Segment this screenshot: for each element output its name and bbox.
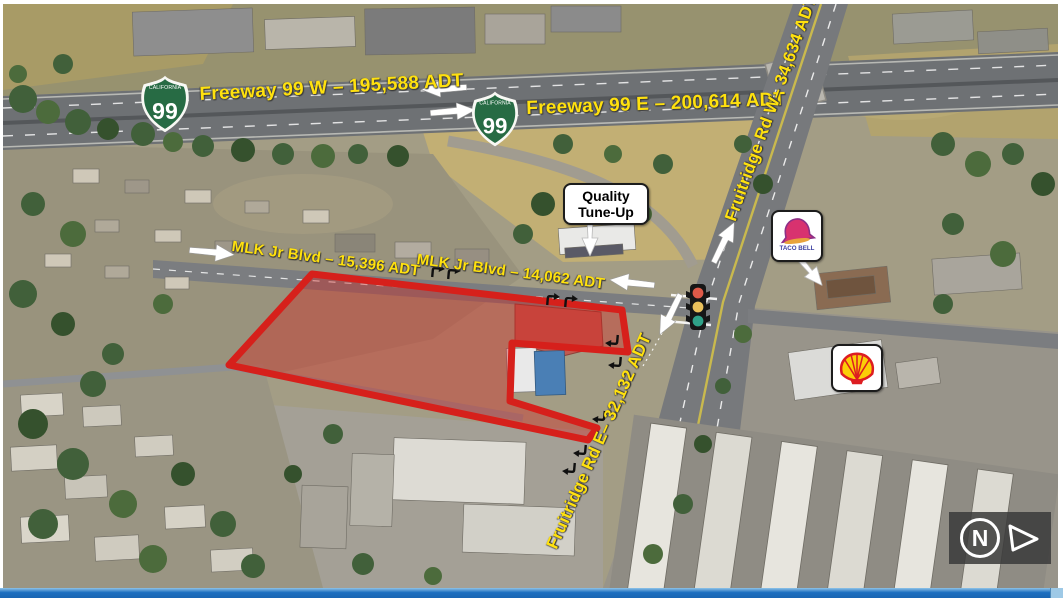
aerial-site-map: CALIFORNIA 99 CALIFORNIA 99 Freeway 99 W… xyxy=(0,0,1063,598)
ca-99-shield-east: CALIFORNIA 99 xyxy=(467,90,523,148)
ca-99-shield-west: CALIFORNIA 99 xyxy=(136,74,194,134)
bottom-bar-end-cap xyxy=(1050,588,1063,598)
north-arrow-icon xyxy=(1006,523,1040,553)
shield-route-number: 99 xyxy=(152,98,178,124)
taco-bell-wordmark: TACO BELL xyxy=(780,245,815,252)
map-viewport: CALIFORNIA 99 CALIFORNIA 99 Freeway 99 W… xyxy=(3,4,1058,588)
shell-logo xyxy=(831,344,883,392)
bottom-window-bar xyxy=(0,588,1063,598)
traffic-light-icon xyxy=(684,283,712,331)
quality-tune-up-line1: Quality xyxy=(567,188,645,204)
north-letter: N xyxy=(960,518,1000,558)
shield-state-name: CALIFORNIA xyxy=(149,85,182,91)
quality-tune-up-callout: Quality Tune-Up xyxy=(563,183,649,225)
shield-state-name: CALIFORNIA xyxy=(479,101,511,107)
taco-bell-logo: TACO BELL xyxy=(771,210,823,262)
quality-tune-up-line2: Tune-Up xyxy=(567,204,645,220)
north-indicator: N xyxy=(949,512,1051,564)
shield-route-number: 99 xyxy=(483,114,508,139)
